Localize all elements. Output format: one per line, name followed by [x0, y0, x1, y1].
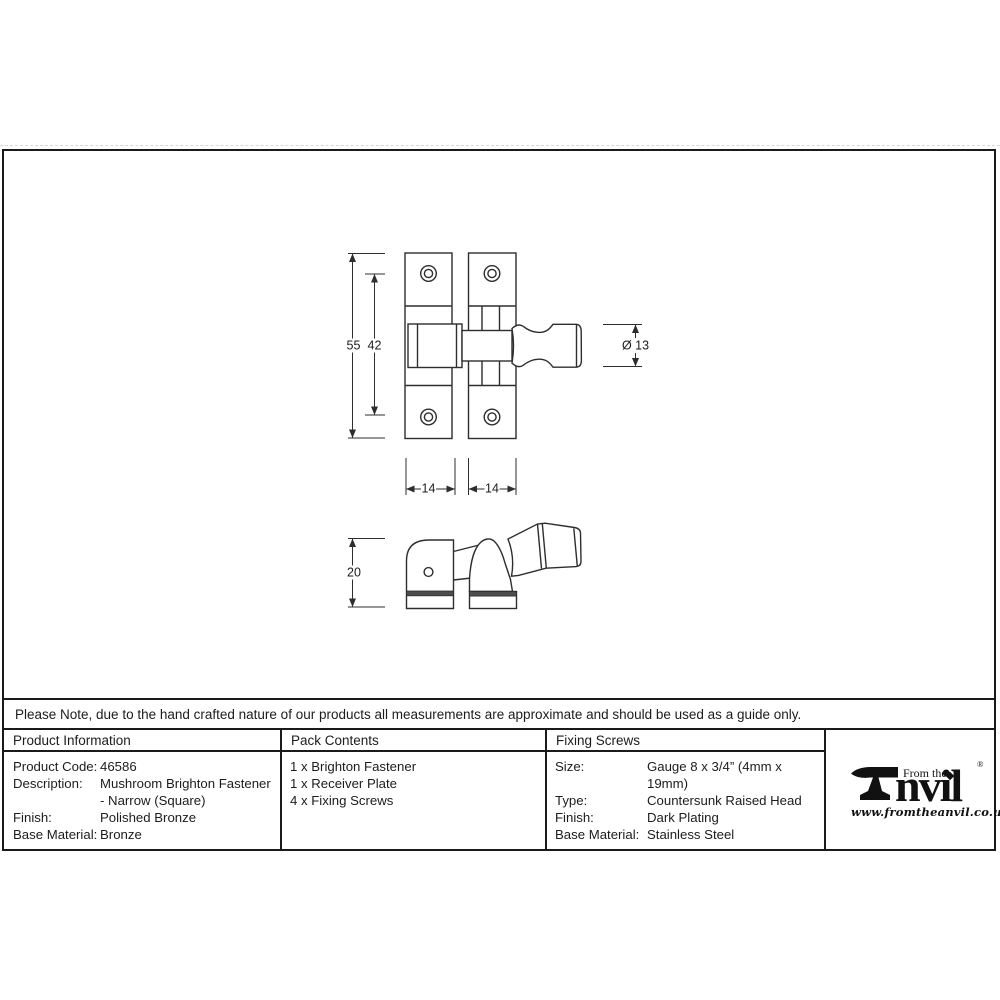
- row-label: Base Material:: [555, 826, 647, 843]
- drawing-area: [4, 151, 994, 698]
- column-product-information: Product Information Product Code: 46586 …: [4, 730, 280, 849]
- row-label: Type:: [555, 792, 647, 809]
- product-datasheet: { "note": "Please Note, due to the hand …: [0, 0, 1000, 1000]
- row-label: Finish:: [555, 809, 647, 826]
- row-value: - Narrow (Square): [100, 792, 206, 809]
- table-row: Description: Mushroom Brighton Fastener: [4, 775, 280, 792]
- product-information-body: Product Code: 46586 Description: Mushroo…: [4, 752, 280, 843]
- list-item: 1 x Brighton Fastener: [282, 758, 545, 775]
- pack-contents-body: 1 x Brighton Fastener 1 x Receiver Plate…: [282, 752, 545, 809]
- scan-artifact-line: [0, 145, 1000, 146]
- row-value: 46586: [100, 758, 137, 775]
- sheet-frame: Please Note, due to the hand crafted nat…: [2, 149, 996, 851]
- row-value: Countersunk Raised Head: [647, 792, 802, 809]
- table-row: Product Code: 46586: [4, 758, 280, 775]
- column-fixing-screws: Fixing Screws Size: Gauge 8 x 3/4” (4mm …: [545, 730, 824, 849]
- table-row: Type: Countersunk Raised Head: [547, 792, 824, 809]
- spec-table: Product Information Product Code: 46586 …: [4, 728, 994, 849]
- row-label: Description:: [13, 775, 100, 792]
- row-value: Mushroom Brighton Fastener: [100, 775, 271, 792]
- row-value: Gauge 8 x 3/4” (4mm x 19mm): [647, 758, 824, 792]
- table-row: Base Material: Bronze: [4, 826, 280, 843]
- anvil-icon: [850, 764, 899, 801]
- row-value: Polished Bronze: [100, 809, 196, 826]
- table-row: Finish: Dark Plating: [547, 809, 824, 826]
- measurement-note: Please Note, due to the hand crafted nat…: [4, 698, 994, 728]
- table-row: - Narrow (Square): [4, 792, 280, 809]
- fixing-screws-header: Fixing Screws: [547, 730, 824, 752]
- row-value: Bronze: [100, 826, 142, 843]
- row-label: Finish:: [13, 809, 100, 826]
- product-information-header: Product Information: [4, 730, 280, 752]
- header-label: Product Information: [13, 733, 131, 748]
- note-text: Please Note, due to the hand crafted nat…: [15, 707, 801, 722]
- table-row: Base Material: Stainless Steel: [547, 826, 824, 843]
- header-label: Fixing Screws: [556, 733, 640, 748]
- table-row: Size: Gauge 8 x 3/4” (4mm x 19mm): [547, 758, 824, 792]
- pack-contents-header: Pack Contents: [282, 730, 545, 752]
- fixing-screws-body: Size: Gauge 8 x 3/4” (4mm x 19mm) Type: …: [547, 752, 824, 843]
- row-label: Size:: [555, 758, 647, 792]
- row-label: Base Material:: [13, 826, 100, 843]
- row-value: Stainless Steel: [647, 826, 734, 843]
- brand-logo: From the nvil ® www.fromtheanvil.co.uk: [850, 763, 990, 821]
- list-item: 4 x Fixing Screws: [282, 792, 545, 809]
- header-label: Pack Contents: [291, 733, 379, 748]
- registered-mark: ®: [977, 759, 983, 769]
- list-item: 1 x Receiver Plate: [282, 775, 545, 792]
- row-label: [13, 792, 100, 809]
- table-row: Finish: Polished Bronze: [4, 809, 280, 826]
- column-pack-contents: Pack Contents 1 x Brighton Fastener 1 x …: [280, 730, 545, 849]
- row-value: Dark Plating: [647, 809, 719, 826]
- column-brand: From the nvil ® www.fromtheanvil.co.uk: [824, 730, 994, 849]
- row-label: Product Code:: [13, 758, 100, 775]
- brand-url: www.fromtheanvil.co.uk: [851, 805, 1000, 819]
- brand-name: nvil: [895, 763, 961, 809]
